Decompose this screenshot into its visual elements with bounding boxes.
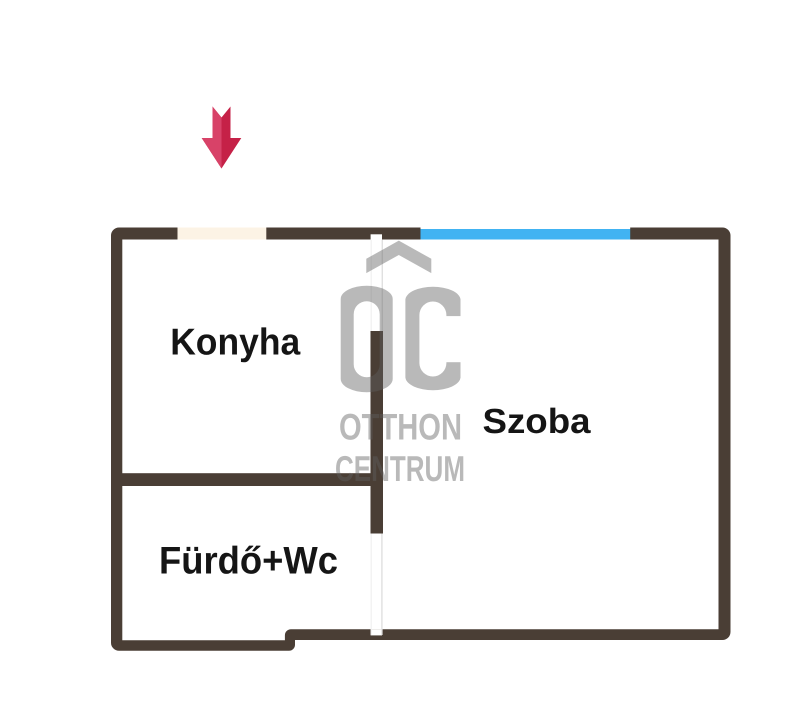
svg-text:OTTHON: OTTHON [339, 406, 462, 447]
svg-text:Szoba: Szoba [483, 402, 592, 441]
svg-text:CENTRUM: CENTRUM [335, 448, 465, 489]
svg-text:Konyha: Konyha [170, 321, 301, 363]
svg-text:Fürdő+Wc: Fürdő+Wc [159, 540, 338, 583]
